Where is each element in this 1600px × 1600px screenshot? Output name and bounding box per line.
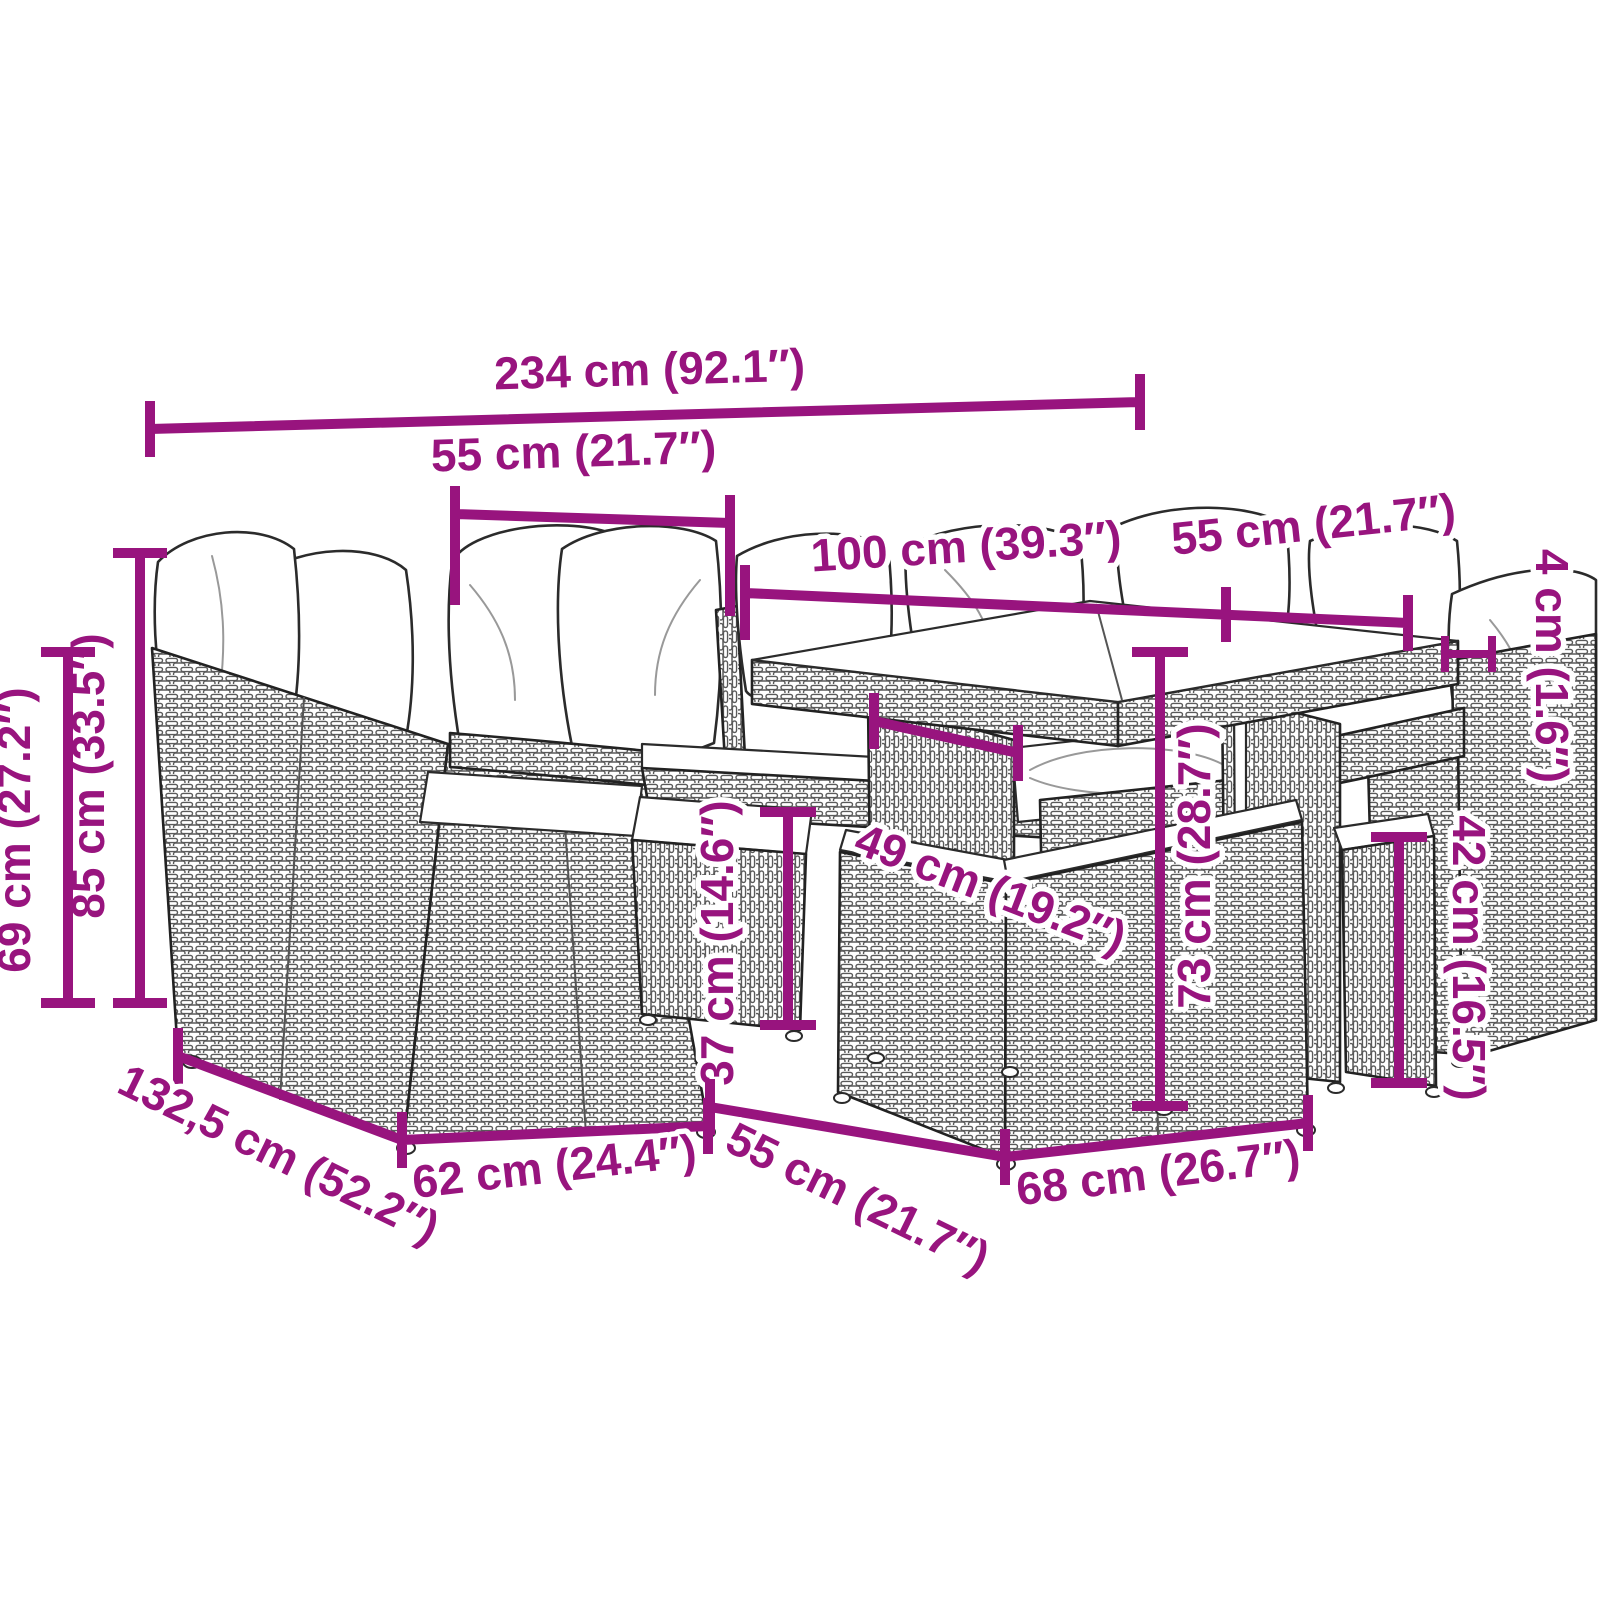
dim-label-stool-height: 42 cm (16.5″): [1443, 815, 1495, 1100]
dim-label-tabletop-thickness: 4 cm (1.6″): [1526, 549, 1578, 783]
dim-label-seat-height: 37 cm (14.6″): [691, 800, 743, 1085]
dim-label-armrest-height: 69 cm (27.2″): [0, 687, 40, 972]
dim-label-backrest-module-width: 55 cm (21.7″): [430, 421, 717, 482]
dim-label-table-height: 73 cm (28.7″): [1168, 723, 1220, 1008]
dim-label-overall-width: 234 cm (92.1″): [493, 339, 805, 400]
stool-body: [1342, 836, 1436, 1086]
cushion: [558, 526, 721, 761]
right-stool: [1334, 814, 1436, 1086]
dim-backrest-height: 85 cm (33.5″): [62, 553, 167, 1003]
dimension-diagram: 234 cm (92.1″) 55 cm (21.7″) 100 cm (39.…: [0, 0, 1600, 1600]
